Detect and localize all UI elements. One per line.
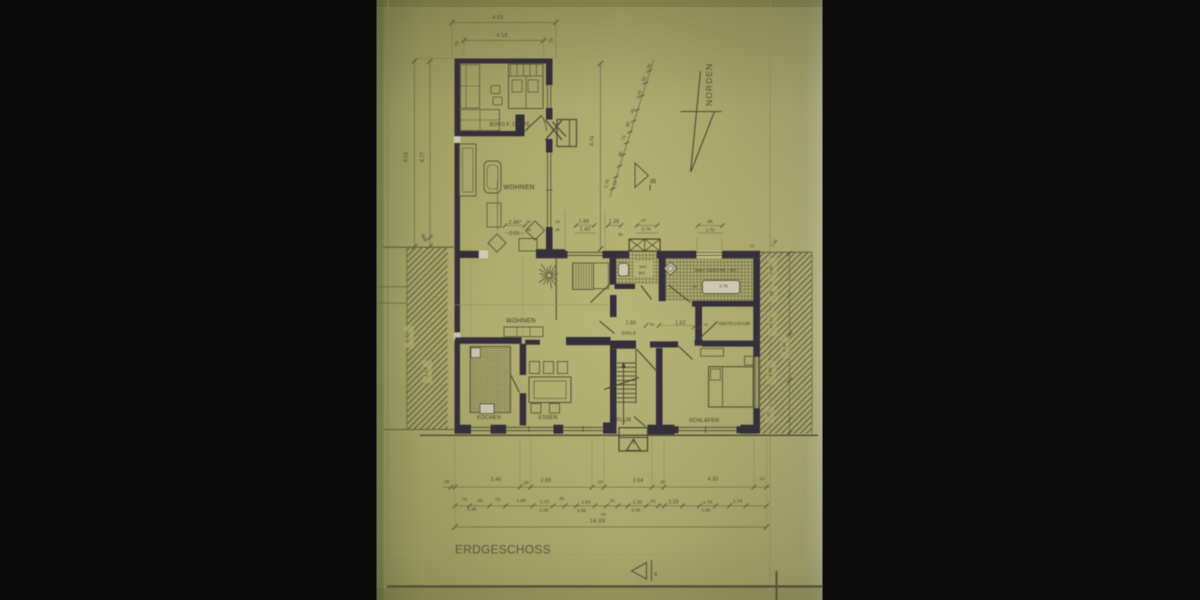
svg-text:1.06: 1.06 <box>540 508 549 513</box>
svg-text:3.82: 3.82 <box>768 367 774 377</box>
svg-text:FLUR: FLUR <box>617 418 632 424</box>
svg-text:.10: .10 <box>597 480 603 485</box>
svg-text:.90: .90 <box>476 498 483 503</box>
svg-text:.18: .18 <box>443 479 450 484</box>
svg-text:1.80: 1.80 <box>769 265 775 275</box>
svg-text:.96: .96 <box>706 219 713 224</box>
svg-text:2.04: 2.04 <box>633 478 644 484</box>
svg-text:2.79: 2.79 <box>719 284 728 289</box>
svg-text:WC: WC <box>639 271 646 276</box>
svg-text:2.24: 2.24 <box>424 367 430 377</box>
svg-text:4.66: 4.66 <box>492 15 503 21</box>
svg-text:.96: .96 <box>554 227 560 232</box>
svg-text:1.74: 1.74 <box>733 499 743 505</box>
svg-text:BAD I DUSCHE I WC: BAD I DUSCHE I WC <box>695 268 737 273</box>
svg-text:.46: .46 <box>558 496 564 501</box>
svg-text:BAD: BAD <box>639 265 647 269</box>
svg-text:1.06: 1.06 <box>516 498 526 504</box>
svg-text:.75: .75 <box>691 285 696 289</box>
svg-text:8.63: 8.63 <box>405 332 411 343</box>
svg-text:8.77: 8.77 <box>420 152 426 162</box>
svg-text:2.01: 2.01 <box>509 231 520 237</box>
svg-text:4.18: 4.18 <box>496 33 507 39</box>
svg-text:1.76: 1.76 <box>703 500 713 506</box>
svg-text:9.03: 9.03 <box>404 152 410 162</box>
svg-text:.51: .51 <box>609 498 616 503</box>
svg-text:1.36: 1.36 <box>468 507 477 512</box>
svg-text:Tü: Tü <box>649 322 655 327</box>
svg-text:.90: .90 <box>525 219 531 224</box>
svg-text:4.33: 4.33 <box>708 477 719 483</box>
svg-text:1.96: 1.96 <box>577 508 586 513</box>
svg-text:BÜRO F. GÄSTE: BÜRO F. GÄSTE <box>490 121 531 128</box>
svg-text:2.68: 2.68 <box>632 508 641 513</box>
svg-text:1.06: 1.06 <box>702 508 711 513</box>
svg-text:1.23: 1.23 <box>540 499 550 505</box>
svg-text:.98: .98 <box>525 227 531 232</box>
svg-text:1.35: 1.35 <box>633 500 643 506</box>
svg-text:.18: .18 <box>522 480 529 485</box>
svg-text:Br.: Br. <box>618 232 623 237</box>
svg-text:.15: .15 <box>749 243 755 248</box>
svg-text:1.64: 1.64 <box>581 500 591 506</box>
svg-text:ERDGESCHOSS: ERDGESCHOSS <box>455 543 551 557</box>
svg-text:2.40: 2.40 <box>782 342 788 352</box>
svg-text:SCHLAFEN: SCHLAFEN <box>689 418 719 424</box>
svg-text:ABSTELLRAUM: ABSTELLRAUM <box>718 321 750 326</box>
svg-text:ESSEN: ESSEN <box>538 415 557 421</box>
svg-text:.95: .95 <box>554 219 560 224</box>
svg-text:2.80: 2.80 <box>541 478 552 484</box>
svg-text:NORDEN: NORDEN <box>704 63 714 106</box>
svg-text:.46: .46 <box>600 513 605 517</box>
svg-text:.12: .12 <box>758 476 765 481</box>
svg-text:.40: .40 <box>421 233 426 240</box>
svg-text:2.76: 2.76 <box>642 227 651 232</box>
svg-text:1.86: 1.86 <box>626 321 637 327</box>
svg-text:.10: .10 <box>659 480 665 485</box>
svg-text:1.19: 1.19 <box>669 500 679 506</box>
svg-text:.36: .36 <box>769 290 775 297</box>
svg-text:1.40: 1.40 <box>580 227 591 233</box>
svg-text:8.79: 8.79 <box>589 136 596 147</box>
svg-text:1.76: 1.76 <box>706 228 715 233</box>
svg-text:.72: .72 <box>494 497 501 502</box>
svg-text:DIELE: DIELE <box>622 331 637 336</box>
svg-text:.91: .91 <box>703 322 709 327</box>
svg-text:B: B <box>649 178 658 183</box>
svg-text:KOCHEN: KOCHEN <box>477 415 501 421</box>
svg-text:10.11: 10.11 <box>769 317 775 329</box>
svg-text:2.46*: 2.46* <box>509 220 522 226</box>
svg-text:WOHNEN: WOHNEN <box>506 319 536 325</box>
svg-text:14.09: 14.09 <box>590 519 606 525</box>
svg-text:.70: .70 <box>461 497 468 502</box>
svg-text:.15: .15 <box>766 411 771 418</box>
svg-text:.53: .53 <box>649 499 656 504</box>
svg-text:.47: .47 <box>640 218 647 223</box>
svg-text:WOHNEN: WOHNEN <box>503 184 535 191</box>
svg-text:2.46: 2.46 <box>491 477 502 483</box>
svg-text:1.86: 1.86 <box>579 219 590 225</box>
svg-text:1.38: 1.38 <box>609 219 620 225</box>
